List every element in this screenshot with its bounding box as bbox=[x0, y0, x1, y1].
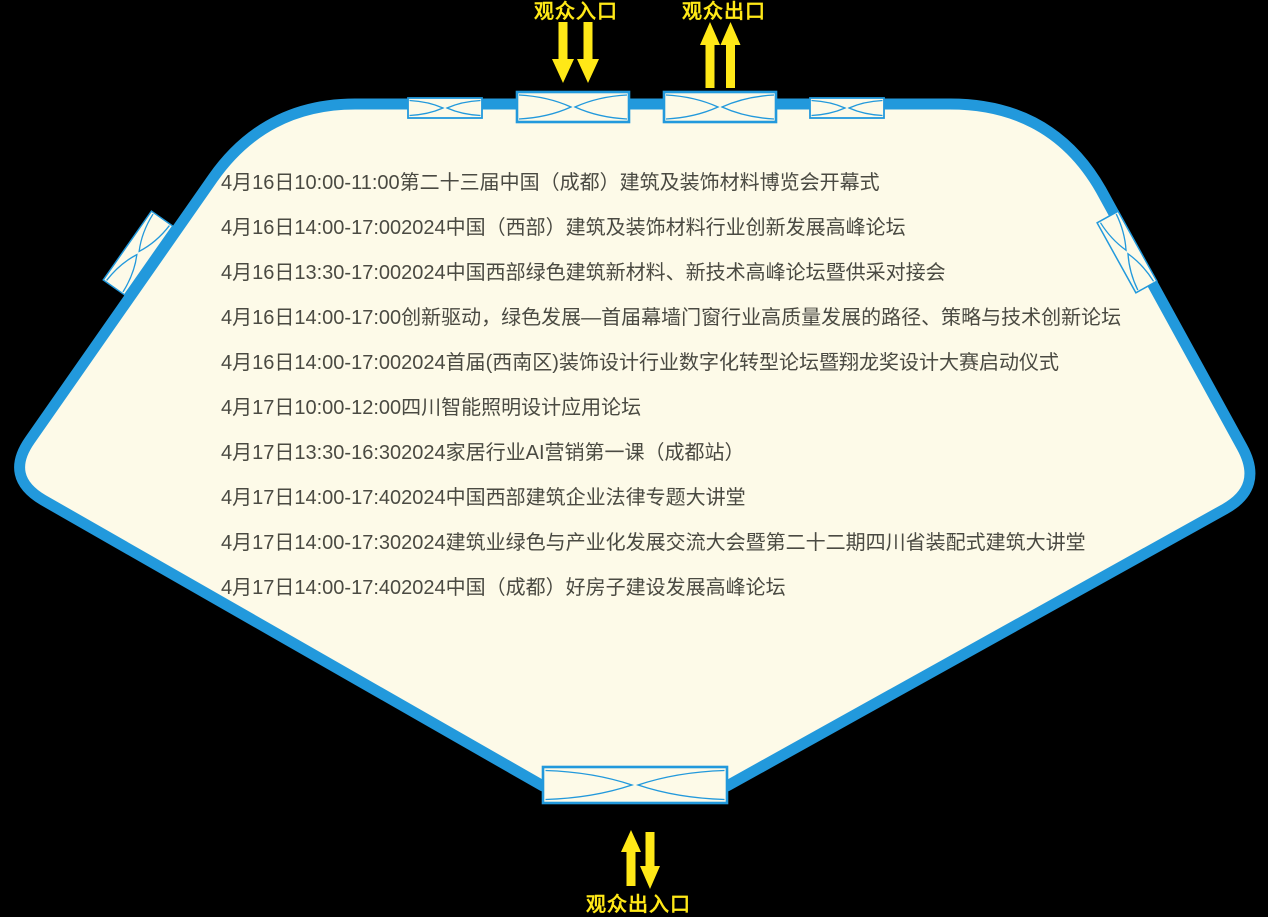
door-top-left-small-icon bbox=[408, 98, 482, 118]
entrance-down-arrows-icon bbox=[552, 22, 599, 83]
schedule-event: 2024中国西部绿色建筑新材料、新技术高峰论坛暨供采对接会 bbox=[401, 256, 1201, 285]
door-top-exit-icon bbox=[664, 92, 776, 122]
schedule-event: 第二十三届中国（成都）建筑及装饰材料博览会开幕式 bbox=[400, 166, 1201, 195]
schedule-time: 4月16日14:00-17:00 bbox=[221, 301, 401, 330]
schedule-time: 4月16日14:00-17:00 bbox=[221, 346, 401, 375]
schedule-time: 4月17日14:00-17:40 bbox=[221, 481, 401, 510]
exhibition-hall-map: 观众入口 观众出口 观众出入口 4月16日10:00-11:00 第二十三届中国… bbox=[0, 0, 1268, 917]
schedule-row: 4月16日14:00-17:00 2024首届(西南区)装饰设计行业数字化转型论… bbox=[221, 338, 1201, 383]
schedule-row: 4月16日13:30-17:00 2024中国西部绿色建筑新材料、新技术高峰论坛… bbox=[221, 248, 1201, 293]
schedule-row: 4月16日14:00-17:00 创新驱动，绿色发展—首届幕墙门窗行业高质量发展… bbox=[221, 293, 1201, 338]
schedule-time: 4月16日13:30-17:00 bbox=[221, 256, 401, 285]
schedule-row: 4月17日10:00-12:00 四川智能照明设计应用论坛 bbox=[221, 383, 1201, 428]
entrance-label: 观众入口 bbox=[534, 2, 618, 22]
schedule-event: 2024家居行业AI营销第一课（成都站） bbox=[401, 436, 1201, 465]
exit-label: 观众出口 bbox=[682, 2, 766, 22]
schedule-time: 4月17日14:00-17:30 bbox=[221, 526, 401, 555]
exit-up-arrows-icon bbox=[700, 22, 741, 88]
schedule-event: 2024中国（西部）建筑及装饰材料行业创新发展高峰论坛 bbox=[401, 211, 1201, 240]
schedule-list: 4月16日10:00-11:00 第二十三届中国（成都）建筑及装饰材料博览会开幕… bbox=[221, 158, 1201, 608]
schedule-row: 4月17日14:00-17:40 2024中国西部建筑企业法律专题大讲堂 bbox=[221, 473, 1201, 518]
schedule-row: 4月16日10:00-11:00 第二十三届中国（成都）建筑及装饰材料博览会开幕… bbox=[221, 158, 1201, 203]
schedule-time: 4月17日14:00-17:40 bbox=[221, 571, 401, 600]
schedule-row: 4月17日14:00-17:30 2024建筑业绿色与产业化发展交流大会暨第二十… bbox=[221, 518, 1201, 563]
door-top-right-small-icon bbox=[810, 98, 884, 118]
door-bottom-icon bbox=[543, 767, 727, 803]
schedule-event: 四川智能照明设计应用论坛 bbox=[401, 391, 1201, 420]
schedule-time: 4月16日14:00-17:00 bbox=[221, 211, 401, 240]
entrance-exit-label: 观众出入口 bbox=[586, 895, 691, 915]
door-top-entrance-icon bbox=[517, 92, 629, 122]
schedule-time: 4月16日10:00-11:00 bbox=[221, 166, 400, 195]
schedule-row: 4月17日14:00-17:40 2024中国（成都）好房子建设发展高峰论坛 bbox=[221, 563, 1201, 608]
schedule-time: 4月17日10:00-12:00 bbox=[221, 391, 401, 420]
schedule-event: 2024中国西部建筑企业法律专题大讲堂 bbox=[401, 481, 1201, 510]
schedule-event: 2024建筑业绿色与产业化发展交流大会暨第二十二期四川省装配式建筑大讲堂 bbox=[401, 526, 1201, 555]
schedule-event: 2024首届(西南区)装饰设计行业数字化转型论坛暨翔龙奖设计大赛启动仪式 bbox=[401, 346, 1201, 375]
schedule-time: 4月17日13:30-16:30 bbox=[221, 436, 401, 465]
bottom-updown-arrows-icon bbox=[621, 830, 660, 889]
schedule-event: 2024中国（成都）好房子建设发展高峰论坛 bbox=[401, 571, 1201, 600]
schedule-event: 创新驱动，绿色发展—首届幕墙门窗行业高质量发展的路径、策略与技术创新论坛 bbox=[401, 301, 1201, 330]
schedule-row: 4月16日14:00-17:00 2024中国（西部）建筑及装饰材料行业创新发展… bbox=[221, 203, 1201, 248]
schedule-row: 4月17日13:30-16:30 2024家居行业AI营销第一课（成都站） bbox=[221, 428, 1201, 473]
